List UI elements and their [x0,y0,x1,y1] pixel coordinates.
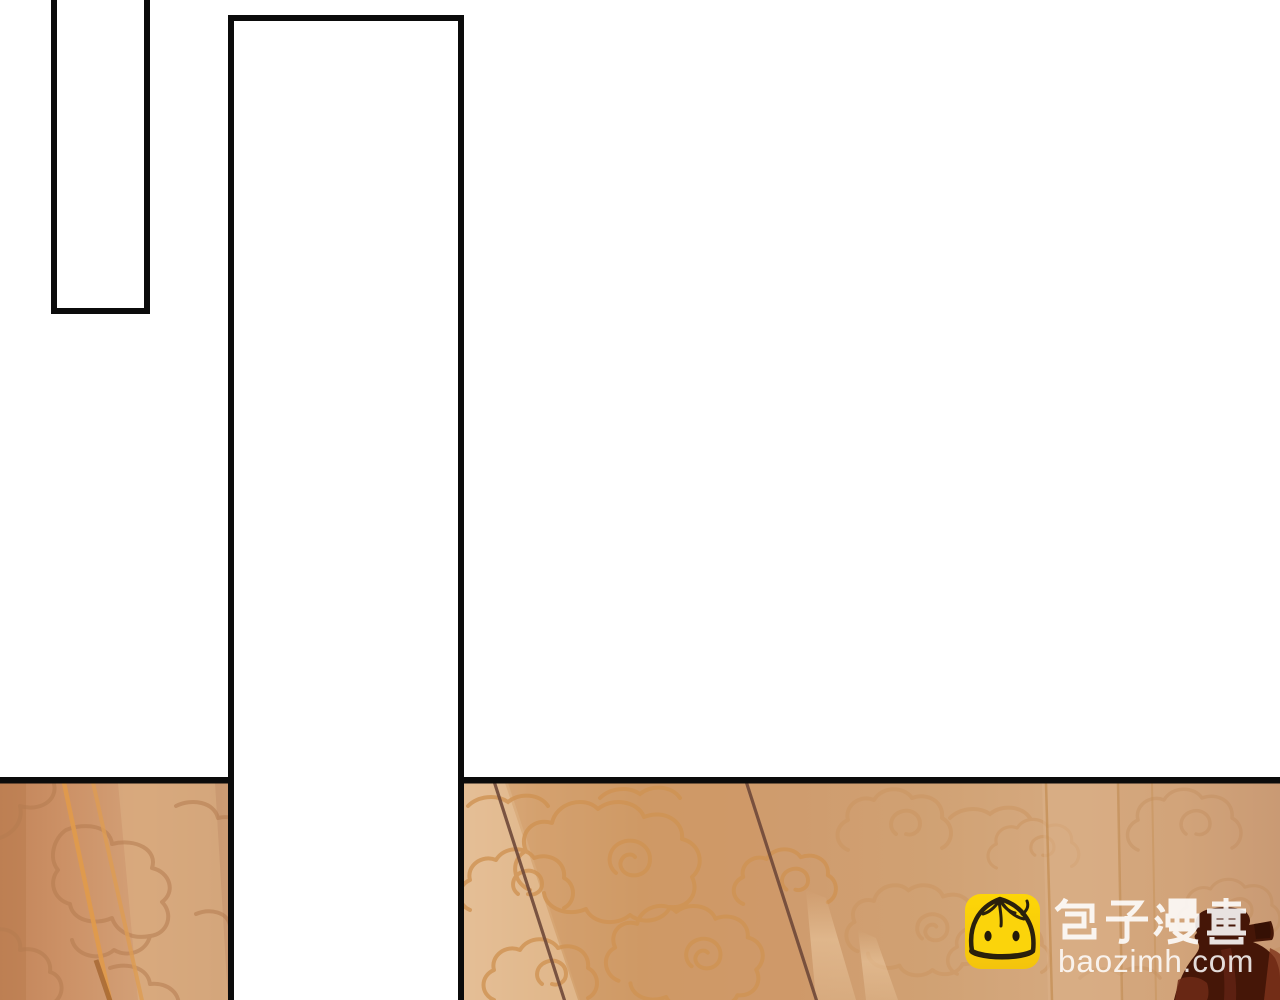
svg-text:baozimh.com: baozimh.com [1058,943,1254,979]
